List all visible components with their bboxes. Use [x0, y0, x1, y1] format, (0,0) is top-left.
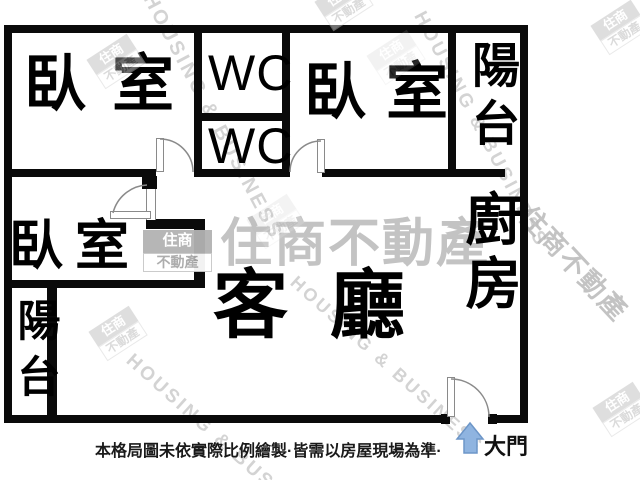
main-door-arc [451, 379, 489, 417]
bedroom2-door-arc [290, 141, 321, 172]
room-label-balcony-left: 陽台 [13, 298, 56, 410]
room-label-wc-top: WC [208, 48, 293, 98]
disclaimer-text: 本格局圖未依實際比例繪製·皆需以房屋現場為準· [95, 437, 442, 461]
floor-plan: HOUSING & BUSINESS HOUSING & BUSINESS HO… [0, 0, 640, 480]
room-label-living-room: 客廳 [213, 268, 447, 343]
bedroom1-door-arc [160, 139, 193, 172]
bedroom3-door-arc [113, 185, 147, 213]
room-label-wc-bottom: WC [208, 121, 293, 171]
entrance-label: 大門 [484, 429, 528, 461]
room-label-bedroom-left: 臥室 [9, 219, 141, 273]
entrance-arrow-icon [457, 423, 483, 453]
room-label-kitchen: 廚房 [461, 190, 517, 318]
room-label-balcony-top: 陽台 [466, 40, 514, 156]
